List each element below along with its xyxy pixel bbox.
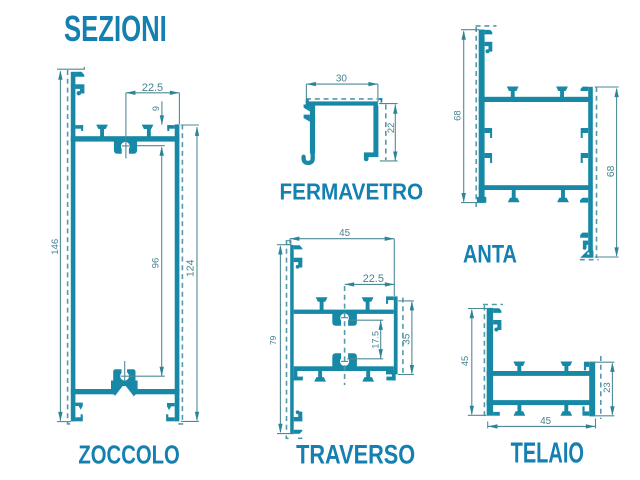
svg-text:TELAIO: TELAIO	[511, 438, 584, 469]
svg-text:45: 45	[540, 416, 551, 427]
svg-text:ZOCCOLO: ZOCCOLO	[78, 440, 179, 469]
svg-text:68: 68	[452, 110, 463, 120]
svg-text:TRAVERSO: TRAVERSO	[296, 440, 415, 470]
svg-text:ANTA: ANTA	[463, 239, 517, 268]
svg-text:45: 45	[339, 228, 350, 239]
svg-text:FERMAVETRO: FERMAVETRO	[280, 178, 424, 204]
svg-text:124: 124	[186, 259, 197, 277]
svg-text:22: 22	[385, 123, 396, 133]
svg-text:23: 23	[602, 382, 613, 393]
svg-text:35: 35	[401, 333, 412, 345]
svg-text:17.5: 17.5	[371, 331, 381, 349]
svg-text:79: 79	[268, 335, 278, 345]
svg-text:146: 146	[50, 239, 61, 255]
svg-text:22.5: 22.5	[363, 273, 384, 285]
svg-text:SEZIONI: SEZIONI	[64, 8, 167, 48]
svg-text:30: 30	[336, 74, 348, 85]
svg-text:22.5: 22.5	[142, 82, 163, 94]
svg-text:9: 9	[151, 106, 161, 111]
svg-text:96: 96	[150, 258, 161, 269]
svg-text:45: 45	[460, 356, 470, 366]
svg-text:68: 68	[606, 165, 617, 177]
